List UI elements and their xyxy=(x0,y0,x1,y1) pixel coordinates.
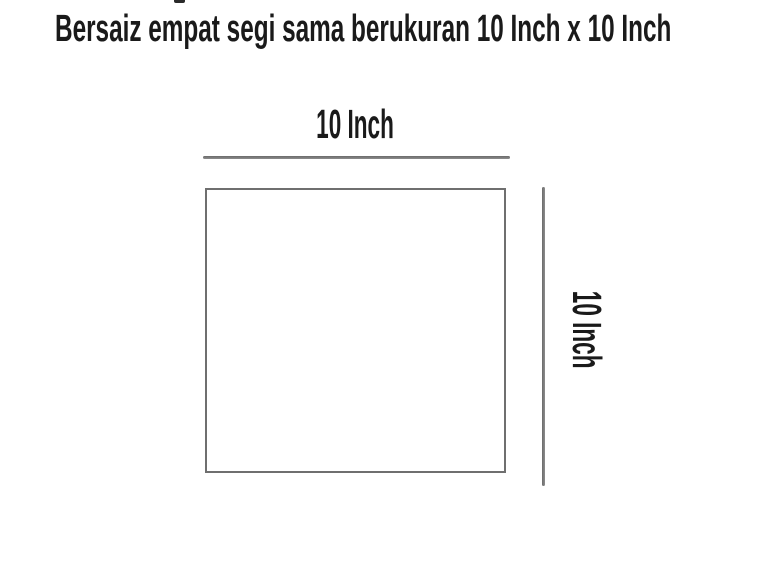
cropped-text-fragment xyxy=(174,0,185,3)
page-title: Bersaiz empat segi sama berukuran 10 Inc… xyxy=(55,7,671,53)
top-dimension-line xyxy=(203,156,510,159)
page: Bersaiz empat segi sama berukuran 10 Inc… xyxy=(0,0,768,583)
top-dimension-label: 10 Inch xyxy=(300,100,410,149)
square-shape xyxy=(205,188,506,473)
right-dimension-line xyxy=(542,187,545,486)
right-dimension-label: 10 Inch xyxy=(567,291,607,369)
right-dimension-label-wrap: 10 Inch xyxy=(567,230,607,430)
